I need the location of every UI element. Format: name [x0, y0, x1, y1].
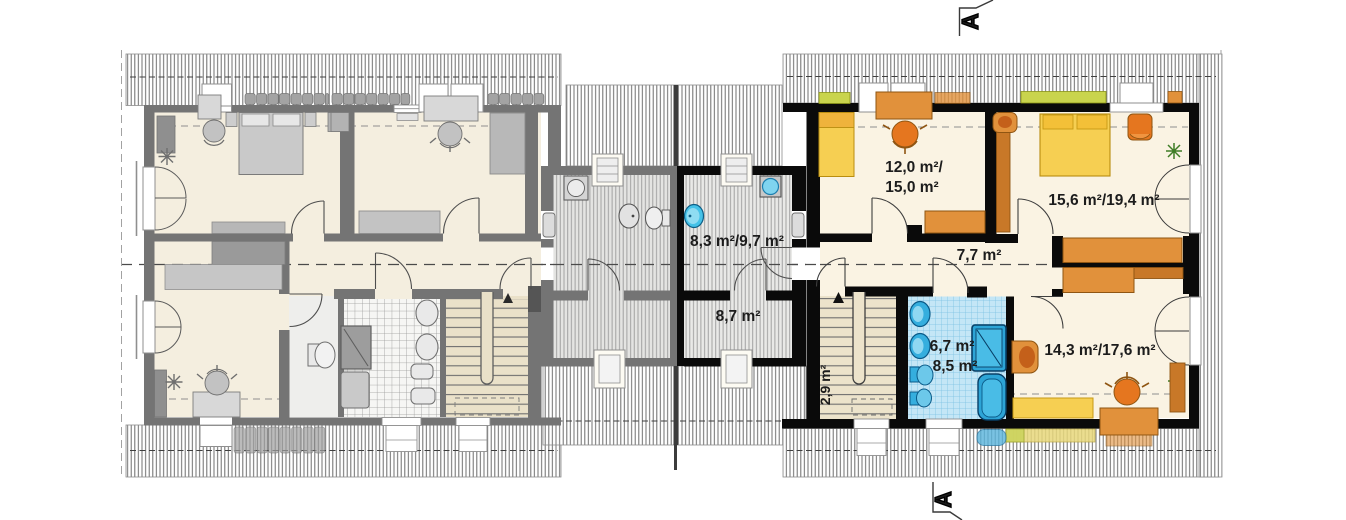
svg-text:7,7 m²: 7,7 m²	[957, 247, 1002, 264]
svg-text:A: A	[930, 491, 956, 508]
svg-text:12,0 m²/: 12,0 m²/	[885, 159, 943, 176]
svg-text:15,6 m²/19,4 m²: 15,6 m²/19,4 m²	[1048, 192, 1159, 209]
svg-text:A: A	[957, 13, 983, 30]
svg-text:8,3 m²/9,7 m²: 8,3 m²/9,7 m²	[690, 233, 784, 250]
svg-text:8,7 m²: 8,7 m²	[716, 308, 761, 325]
svg-text:15,0 m²: 15,0 m²	[885, 179, 938, 196]
svg-text:8,5 m²: 8,5 m²	[933, 358, 978, 375]
svg-text:14,3 m²/17,6 m²: 14,3 m²/17,6 m²	[1044, 342, 1155, 359]
svg-text:6,7 m²: 6,7 m²	[930, 338, 975, 355]
svg-text:2,9 m²: 2,9 m²	[817, 364, 833, 405]
